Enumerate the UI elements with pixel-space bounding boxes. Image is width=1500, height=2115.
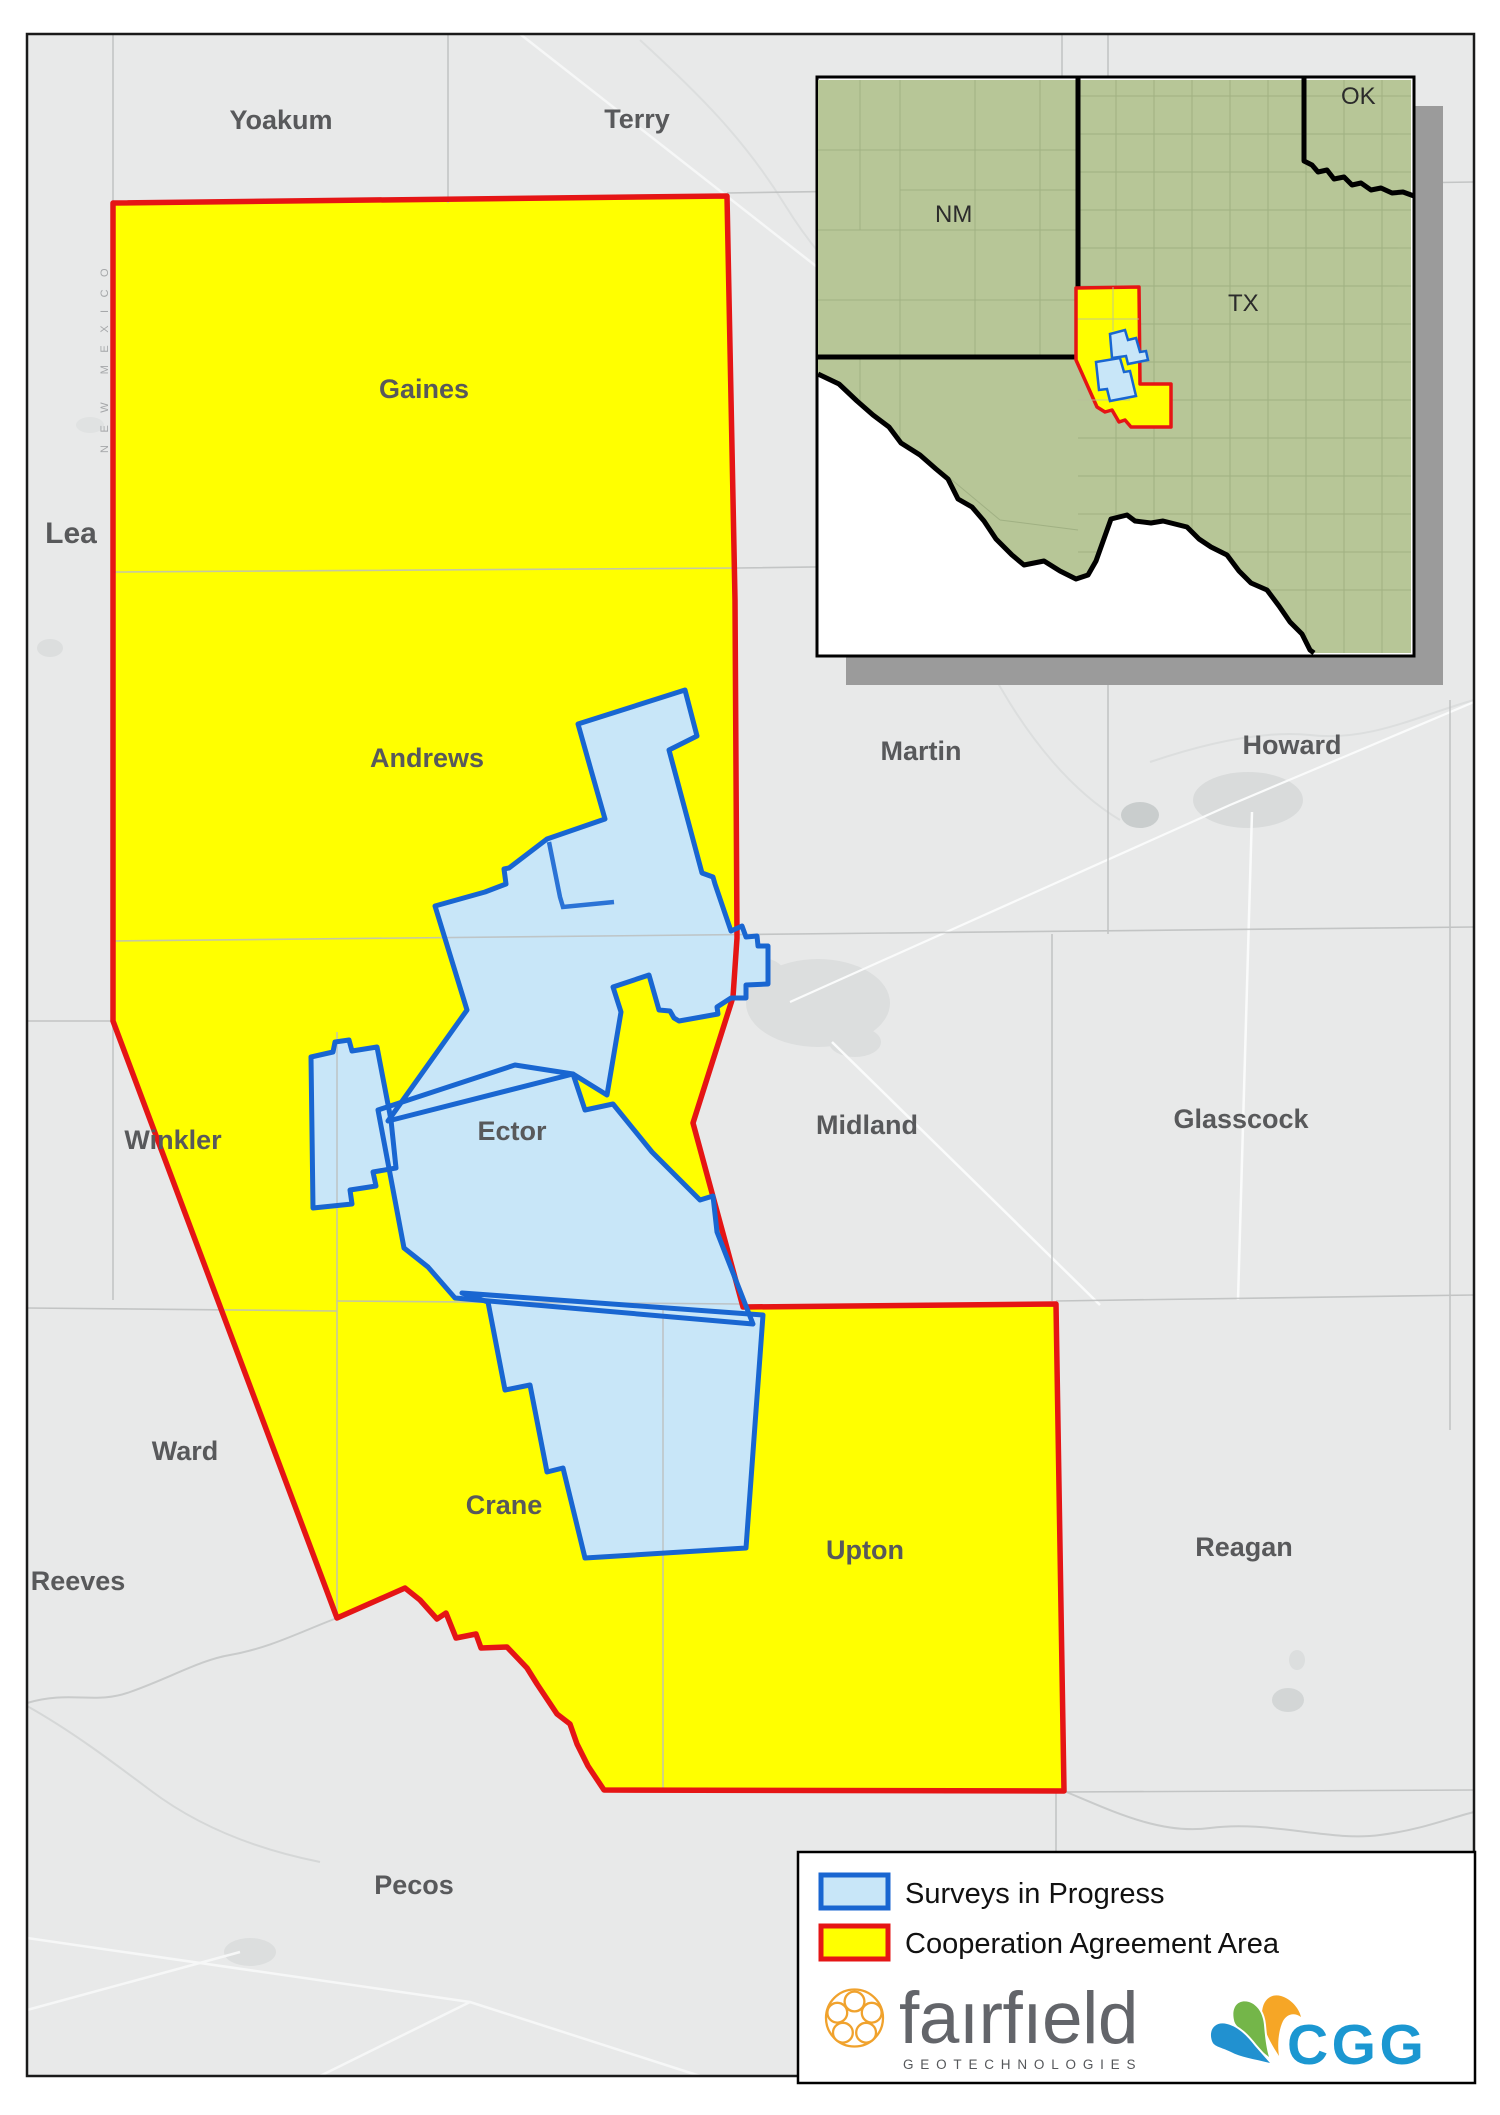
svg-text:NEW MEXICO: NEW MEXICO: [99, 256, 111, 453]
svg-text:Pecos: Pecos: [374, 1870, 454, 1900]
svg-text:OK: OK: [1341, 83, 1376, 110]
svg-text:Ward: Ward: [152, 1436, 219, 1466]
svg-text:Andrews: Andrews: [370, 743, 484, 773]
svg-text:GEOTECHNOLOGIES: GEOTECHNOLOGIES: [903, 2057, 1142, 2072]
svg-text:Surveys in Progress: Surveys in Progress: [905, 1878, 1165, 1910]
svg-text:Upton: Upton: [826, 1535, 904, 1565]
svg-text:Crane: Crane: [466, 1490, 543, 1520]
svg-text:Winkler: Winkler: [124, 1125, 222, 1155]
svg-text:Cooperation Agreement Area: Cooperation Agreement Area: [905, 1928, 1280, 1960]
svg-text:faırfıeld: faırfıeld: [899, 1978, 1138, 2059]
svg-text:TX: TX: [1228, 290, 1259, 317]
svg-text:Howard: Howard: [1242, 730, 1341, 760]
svg-text:Reeves: Reeves: [31, 1566, 126, 1596]
svg-text:Yoakum: Yoakum: [229, 105, 332, 135]
svg-text:Glasscock: Glasscock: [1173, 1104, 1309, 1134]
svg-text:CGG: CGG: [1287, 2013, 1427, 2077]
svg-text:Ector: Ector: [477, 1116, 547, 1146]
svg-text:Reagan: Reagan: [1195, 1532, 1293, 1562]
svg-text:Gaines: Gaines: [379, 374, 469, 404]
svg-text:Terry: Terry: [604, 104, 670, 134]
svg-text:Lea: Lea: [45, 517, 97, 550]
svg-text:Midland: Midland: [816, 1110, 918, 1140]
svg-text:NM: NM: [935, 201, 972, 228]
svg-text:Martin: Martin: [881, 736, 962, 766]
